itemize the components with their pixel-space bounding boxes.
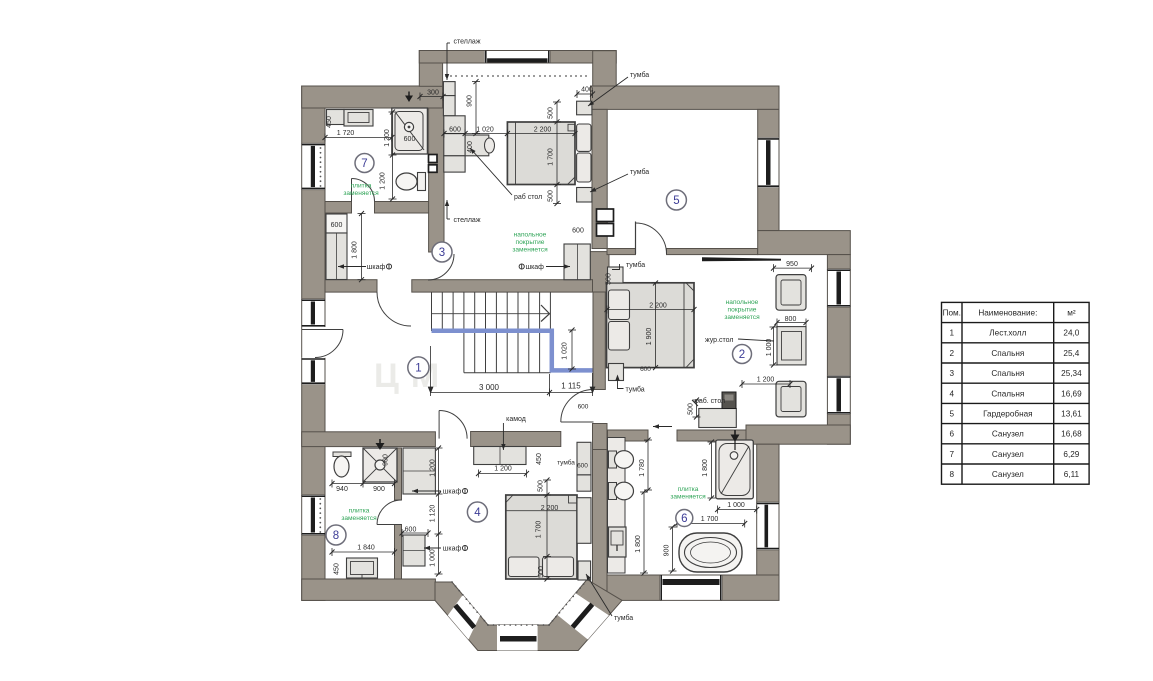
svg-text:Спальня: Спальня	[991, 389, 1024, 398]
svg-text:плитка: плитка	[351, 183, 372, 190]
svg-text:тумба: тумба	[614, 614, 633, 622]
svg-text:2: 2	[739, 349, 745, 361]
svg-text:1 700: 1 700	[548, 148, 555, 166]
svg-text:16,69: 16,69	[1061, 389, 1082, 398]
svg-text:2 200: 2 200	[534, 127, 552, 134]
svg-text:Спальня: Спальня	[991, 349, 1024, 358]
svg-text:1 900: 1 900	[646, 328, 653, 346]
svg-text:жур.стол: жур.стол	[705, 337, 733, 344]
svg-text:2 200: 2 200	[649, 303, 667, 310]
svg-text:Спальня: Спальня	[991, 369, 1024, 378]
svg-text:шкаф: шкаф	[443, 489, 462, 496]
svg-text:500: 500	[548, 107, 555, 119]
svg-text:6: 6	[681, 513, 687, 525]
svg-text:8: 8	[949, 470, 954, 479]
svg-text:7: 7	[361, 158, 367, 170]
svg-text:1: 1	[949, 329, 954, 338]
svg-text:450: 450	[536, 453, 543, 465]
svg-text:тумба: тумба	[626, 261, 645, 269]
svg-text:плитка: плитка	[678, 486, 699, 493]
svg-text:заменяется: заменяется	[341, 515, 377, 522]
svg-text:2 200: 2 200	[541, 505, 559, 512]
svg-text:3 000: 3 000	[479, 383, 500, 392]
svg-text:заменяется: заменяется	[343, 190, 379, 197]
svg-text:600: 600	[405, 527, 417, 534]
svg-text:600: 600	[577, 463, 588, 470]
svg-text:1 020: 1 020	[476, 127, 494, 134]
svg-text:Санузел: Санузел	[992, 450, 1024, 459]
svg-text:1 800: 1 800	[702, 459, 709, 477]
svg-text:1: 1	[415, 363, 421, 375]
svg-text:3: 3	[439, 247, 445, 259]
svg-text:1 000: 1 000	[430, 549, 437, 567]
svg-text:1 200: 1 200	[430, 459, 437, 477]
svg-text:5: 5	[673, 195, 679, 207]
svg-text:600: 600	[572, 228, 584, 235]
svg-text:600: 600	[578, 404, 589, 411]
svg-text:1 800: 1 800	[635, 535, 642, 553]
svg-text:900: 900	[373, 486, 385, 493]
svg-text:тумба: тумба	[630, 71, 649, 79]
svg-text:24,0: 24,0	[1063, 329, 1079, 338]
svg-text:1 000: 1 000	[766, 339, 773, 357]
svg-text:заменяется: заменяется	[512, 247, 548, 254]
svg-text:6,11: 6,11	[1064, 470, 1080, 479]
svg-text:шкаф: шкаф	[525, 264, 544, 271]
svg-text:плитка: плитка	[349, 508, 370, 515]
svg-text:раб. стол: раб. стол	[695, 397, 725, 405]
svg-text:600: 600	[449, 127, 461, 134]
svg-text:1 000: 1 000	[727, 502, 745, 509]
svg-text:800: 800	[785, 316, 797, 323]
svg-text:заменяется: заменяется	[670, 494, 706, 501]
svg-text:500: 500	[538, 566, 545, 578]
svg-text:600: 600	[404, 136, 416, 143]
svg-text:1 800: 1 800	[352, 241, 359, 259]
svg-text:600: 600	[640, 366, 651, 373]
svg-text:600: 600	[331, 222, 343, 229]
svg-text:заменяется: заменяется	[724, 314, 760, 321]
svg-text:камод: камод	[506, 416, 526, 423]
svg-text:500: 500	[688, 403, 695, 415]
svg-text:1 700: 1 700	[701, 516, 719, 523]
svg-text:6,29: 6,29	[1063, 450, 1079, 459]
svg-text:покрытие: покрытие	[728, 307, 757, 314]
svg-text:7: 7	[949, 450, 954, 459]
svg-text:8: 8	[333, 530, 339, 542]
svg-text:1 200: 1 200	[494, 466, 512, 473]
svg-text:стеллаж: стеллаж	[453, 217, 480, 224]
svg-text:Санузел: Санузел	[992, 430, 1024, 439]
svg-text:25,34: 25,34	[1061, 369, 1082, 378]
svg-text:900: 900	[383, 454, 390, 466]
svg-text:Пом.: Пом.	[943, 309, 961, 318]
svg-text:900: 900	[664, 545, 671, 557]
svg-text:тумба: тумба	[626, 386, 645, 394]
svg-text:940: 940	[336, 486, 348, 493]
svg-text:4: 4	[474, 507, 481, 519]
svg-text:1 115: 1 115	[561, 382, 581, 391]
svg-text:1 700: 1 700	[536, 521, 543, 539]
svg-text:1 200: 1 200	[384, 129, 391, 147]
svg-text:шкаф: шкаф	[443, 546, 462, 553]
svg-text:500: 500	[548, 190, 555, 202]
svg-text:стеллаж: стеллаж	[453, 39, 480, 46]
svg-text:шкаф: шкаф	[367, 264, 386, 271]
svg-text:5: 5	[949, 410, 954, 419]
svg-text:тумба: тумба	[630, 168, 649, 176]
svg-text:3: 3	[949, 369, 954, 378]
svg-text:раб стол: раб стол	[514, 193, 542, 201]
svg-text:тумба: тумба	[557, 459, 575, 467]
svg-text:1 200: 1 200	[380, 172, 387, 190]
svg-text:Гардеробная: Гардеробная	[983, 410, 1033, 419]
svg-text:4: 4	[949, 389, 954, 398]
svg-text:500: 500	[538, 480, 545, 492]
svg-text:1 120: 1 120	[430, 505, 437, 523]
svg-text:1 780: 1 780	[639, 459, 646, 477]
svg-text:м²: м²	[1067, 309, 1076, 318]
svg-text:Наименование:: Наименование:	[978, 309, 1037, 318]
svg-text:напольное: напольное	[726, 299, 759, 306]
svg-text:1 840: 1 840	[357, 545, 375, 552]
svg-text:1 020: 1 020	[562, 342, 569, 360]
svg-text:13,61: 13,61	[1061, 410, 1082, 419]
svg-text:Лест.холл: Лест.холл	[989, 329, 1026, 338]
svg-text:16,68: 16,68	[1061, 430, 1082, 439]
svg-text:400: 400	[467, 141, 474, 153]
svg-text:450: 450	[326, 116, 333, 128]
svg-text:500: 500	[606, 273, 613, 285]
svg-text:25,4: 25,4	[1063, 349, 1079, 358]
svg-text:1 200: 1 200	[757, 377, 775, 384]
svg-text:напольное: напольное	[514, 232, 547, 239]
svg-text:950: 950	[786, 261, 798, 268]
svg-text:2: 2	[949, 349, 954, 358]
svg-text:300: 300	[427, 90, 439, 97]
svg-text:450: 450	[334, 563, 341, 575]
svg-text:400: 400	[581, 87, 593, 94]
svg-text:6: 6	[949, 430, 954, 439]
svg-text:покрытие: покрытие	[516, 239, 545, 246]
svg-text:1 720: 1 720	[337, 130, 355, 137]
svg-text:900: 900	[467, 95, 474, 107]
svg-text:Санузел: Санузел	[992, 470, 1024, 479]
